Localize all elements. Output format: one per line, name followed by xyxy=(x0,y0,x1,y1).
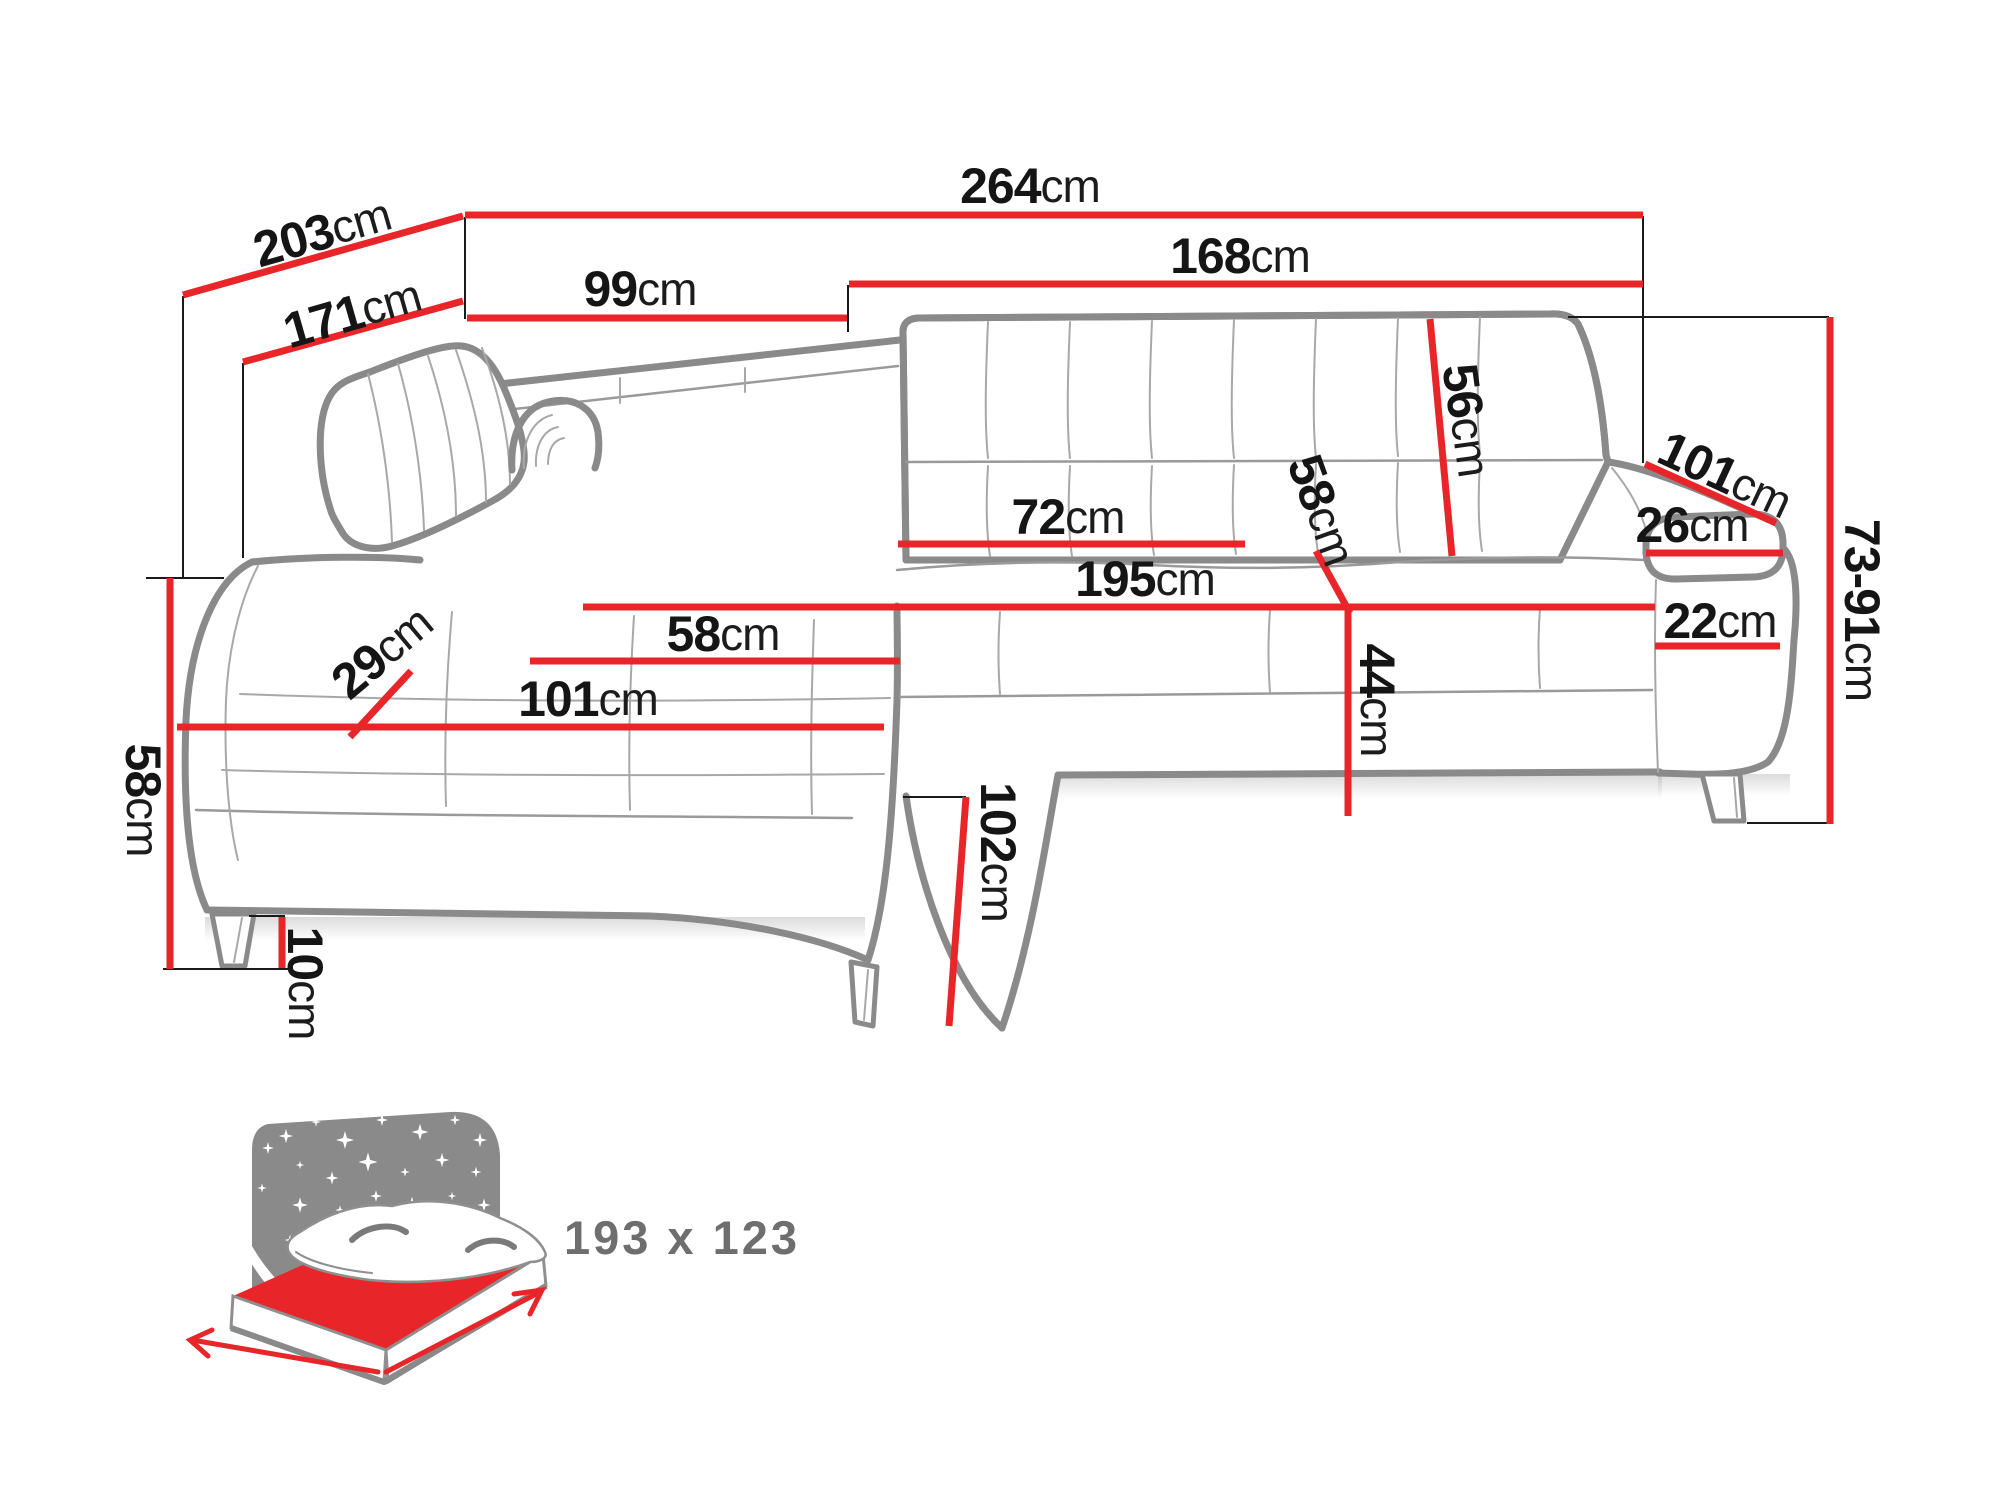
dimension-label-right-back-width: 168cm xyxy=(1170,228,1310,284)
svg-text:264cm: 264cm xyxy=(960,158,1100,214)
backrest-left xyxy=(463,340,900,414)
sleeping-area-icon: 193 x 123 xyxy=(190,1112,800,1382)
svg-text:72cm: 72cm xyxy=(1012,489,1125,545)
svg-text:26cm: 26cm xyxy=(1636,497,1749,553)
dimension-label-armrest-front-width: 22cm xyxy=(1664,593,1777,649)
svg-text:168cm: 168cm xyxy=(1170,228,1310,284)
chaise-section xyxy=(185,557,897,960)
dimension-label-chaise-length: 101cm xyxy=(518,671,658,727)
dimension-label-overall-height-range: 73-91cm xyxy=(1834,519,1890,701)
svg-text:22cm: 22cm xyxy=(1664,593,1777,649)
dimension-label-left-back-width: 99cm xyxy=(584,261,697,317)
dimension-labels: 264cm 203cm 171cm 99cm 168cm 56cm 101cm … xyxy=(115,158,1890,1039)
svg-text:29cm: 29cm xyxy=(321,594,444,710)
svg-text:102cm: 102cm xyxy=(970,782,1026,922)
diagram-canvas: 264cm 203cm 171cm 99cm 168cm 56cm 101cm … xyxy=(0,0,2000,1499)
dimension-label-total-width: 264cm xyxy=(960,158,1100,214)
dimension-label-seat-height: 44cm xyxy=(1349,644,1405,757)
svg-text:10cm: 10cm xyxy=(277,927,333,1040)
dimension-label-leg-height: 10cm xyxy=(277,927,333,1040)
svg-text:195cm: 195cm xyxy=(1075,551,1215,607)
svg-text:44cm: 44cm xyxy=(1349,644,1405,757)
dimension-label-armrest-cushion-width: 26cm xyxy=(1636,497,1749,553)
svg-text:101cm: 101cm xyxy=(518,671,658,727)
svg-text:58cm: 58cm xyxy=(667,606,780,662)
backrest-right xyxy=(897,314,1645,570)
svg-text:171cm: 171cm xyxy=(277,267,427,359)
dimension-label-seat-width: 195cm xyxy=(1075,551,1215,607)
svg-text:203cm: 203cm xyxy=(247,186,397,278)
dimension-label-side-height: 58cm xyxy=(115,744,171,857)
dimension-label-backrest-section-width: 72cm xyxy=(1012,489,1125,545)
dimension-label-cushion-thickness: 29cm xyxy=(321,594,444,710)
dimension-label-front-height: 102cm xyxy=(970,782,1026,922)
dimension-label-inner-depth: 171cm xyxy=(277,267,427,359)
dim-front-height-line xyxy=(949,797,966,1026)
dimension-label-chaise-seat-width: 58cm xyxy=(667,606,780,662)
sleeping-area-size-label: 193 x 123 xyxy=(564,1211,800,1264)
svg-text:58cm: 58cm xyxy=(115,744,171,857)
sofa-dimension-diagram: 264cm 203cm 171cm 99cm 168cm 56cm 101cm … xyxy=(0,0,2000,1499)
svg-text:73-91cm: 73-91cm xyxy=(1834,519,1890,701)
dimension-label-outer-depth: 203cm xyxy=(247,186,397,278)
headrest-pillow xyxy=(320,346,524,549)
svg-text:99cm: 99cm xyxy=(584,261,697,317)
